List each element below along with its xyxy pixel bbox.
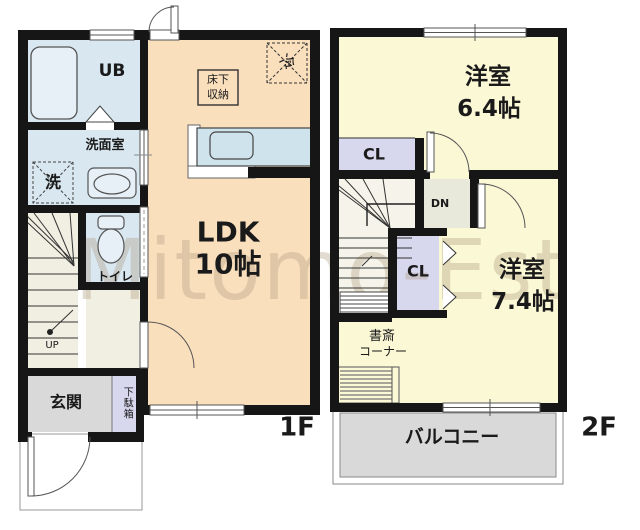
room-size-yoshitsu1: 6.4帖: [457, 97, 521, 121]
entrance-porch: [20, 434, 142, 510]
study-desk: [338, 367, 399, 403]
floorplan-image: Mitomo-Est: [0, 0, 640, 530]
floor-label-1f: 1F: [279, 414, 315, 441]
door-toilet: [140, 207, 148, 277]
label-underfloor-storage-2: 収納: [207, 89, 229, 101]
label-closet-lower: CL: [407, 264, 429, 281]
room-size-yoshitsu2: 7.4帖: [491, 290, 555, 314]
door-ldk-north: [149, 6, 179, 40]
label-closet-upper: CL: [363, 147, 385, 164]
label-washer: 洗: [45, 175, 61, 192]
room-label-senmenshitsu: 洗面室: [85, 139, 124, 153]
room-label-yoshitsu1: 洋室: [465, 65, 511, 89]
room-label-balcony: バルコニー: [405, 428, 500, 448]
room-label-ldk: LDK: [197, 217, 260, 246]
window-ub: [90, 30, 134, 40]
label-study-corner-1: 書斎: [369, 330, 395, 344]
room-label-genkan: 玄関: [50, 395, 82, 412]
floor-label-2f: 2F: [581, 414, 617, 441]
stair-hatch-box: [340, 292, 390, 316]
bathtub-icon: [31, 47, 77, 119]
room-label-toilet: トイレ: [97, 271, 133, 284]
kitchen-counter: [188, 125, 311, 178]
washbasin-icon: [88, 168, 136, 198]
label-stairs-up: UP: [45, 341, 58, 352]
room-size-ldk: 10帖: [195, 249, 262, 278]
label-underfloor-storage-1: 床下: [207, 74, 229, 86]
toilet-icon: [98, 216, 124, 263]
label-stairs-dn: DN: [431, 198, 449, 210]
label-study-corner-2: コーナー: [359, 346, 407, 359]
label-getabako: 下駄箱: [121, 387, 132, 420]
room-label-ub: UB: [99, 63, 126, 81]
room-label-yoshitsu2: 洋室: [499, 258, 545, 282]
